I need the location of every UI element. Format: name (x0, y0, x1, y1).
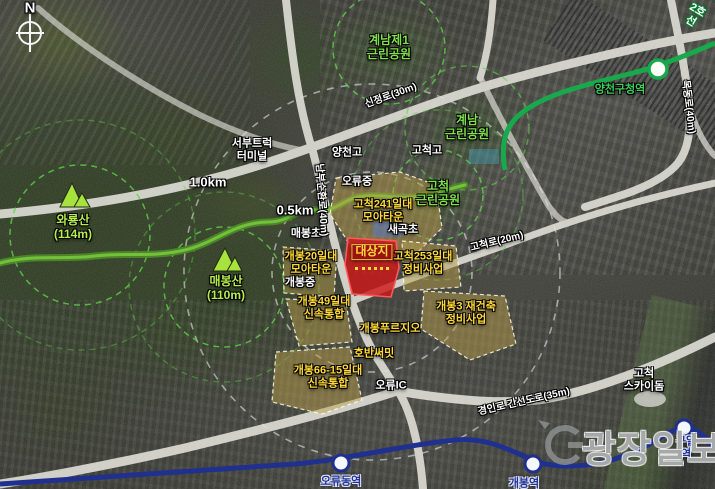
compass-north-label: N (25, 0, 36, 17)
waryong-outer-circle (0, 120, 195, 350)
label-oryudong-station: 오류동역 (321, 476, 361, 489)
label-gyenam-park: 계남 근린공원 (445, 114, 489, 142)
label-saegok-es: 새곡초 (388, 224, 418, 237)
oryudong-station-marker (333, 455, 349, 471)
road-mokdongro (585, 0, 690, 207)
scale-1km-label: 1.0km (190, 176, 227, 191)
label-gocheok-park: 고척 근린공원 (416, 180, 460, 208)
label-target-site: 대상지 (351, 244, 392, 260)
label-oryu-ms: 오류중 (342, 176, 372, 189)
label-gc253-project: 고척253일대 정비사업 (394, 250, 453, 275)
label-yangcheon-station: 양천구청역 (595, 84, 646, 97)
target-site-dots (355, 263, 389, 270)
gaebong-station-marker (525, 456, 541, 472)
yangcheon-station-marker (649, 60, 667, 78)
label-maebongsan: 매봉산 (110m) (207, 275, 245, 303)
label-gb20-moatown: 개봉20일대 모아타운 (285, 250, 338, 275)
label-hoban-apt: 호반써밋 (354, 348, 394, 361)
label-gocheok-skydome: 고척 스카이돔 (624, 367, 664, 392)
label-seobu-truck-terminal: 서부트럭 터미널 (232, 137, 272, 162)
skydome-shape (634, 391, 666, 407)
road-northwest (38, 8, 300, 150)
label-gb3-rebuild: 개봉3 재건축 정비사업 (436, 300, 496, 325)
label-gb66-project: 개봉66-15일대 신속통합 (294, 364, 363, 389)
label-waryongsan: 와룡산 (114m) (54, 214, 92, 242)
label-gaebong-ms: 개봉중 (285, 277, 315, 290)
label-gaebong-station: 개봉역 (509, 478, 539, 489)
watermark-text: 광장일보 (582, 419, 715, 473)
compass-icon (16, 14, 44, 52)
label-yangcheon-hs: 양천고 (332, 147, 362, 160)
label-gb49-project: 개봉49일대 신속통합 (298, 295, 351, 320)
watermark-logo-hook (538, 420, 550, 429)
label-purgio-apt: 개봉푸르지오 (360, 323, 421, 336)
scale-500m-label: 0.5km (277, 204, 314, 219)
road-north-stub (480, 0, 493, 78)
aerial-map: N 1.0km 0.5km 계남제1 근린공원 계남 근린공원 고척 근린공원 … (0, 0, 715, 489)
label-gocheok-hs: 고척고 (412, 145, 442, 158)
facility-site-teal (469, 149, 499, 164)
label-oryu-ic: 오류IC (375, 380, 406, 393)
label-gyenam1-park: 계남제1 근린공원 (367, 34, 411, 62)
label-gc241-moatown: 고척241일대 모아타운 (354, 198, 413, 223)
